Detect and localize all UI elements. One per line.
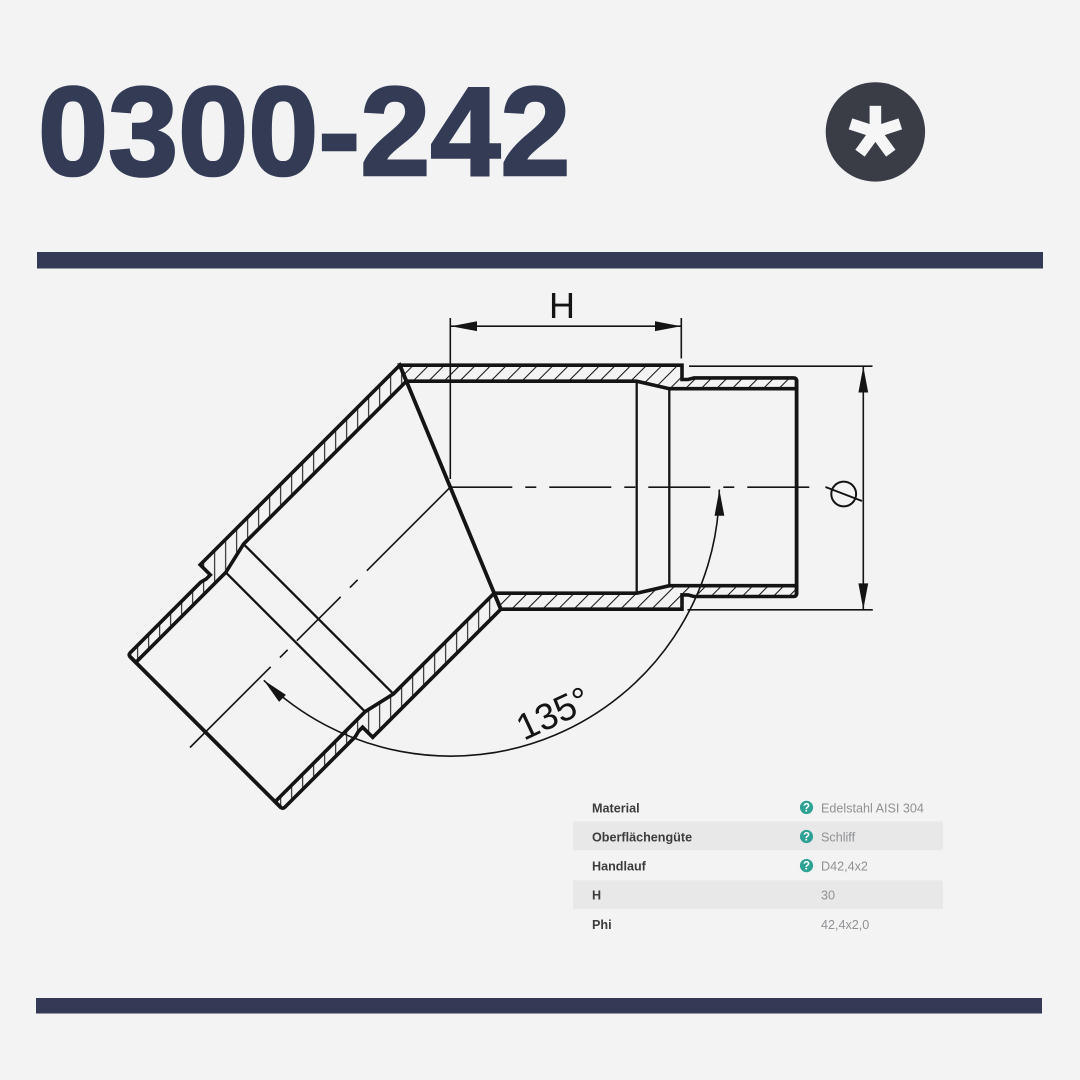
- svg-text:Schliff: Schliff: [821, 831, 856, 845]
- svg-text:30: 30: [821, 889, 835, 903]
- svg-text:Phi: Phi: [592, 918, 612, 932]
- svg-text:Edelstahl AISI 304: Edelstahl AISI 304: [821, 801, 924, 815]
- svg-text:?: ?: [803, 803, 810, 815]
- svg-text:0300-242: 0300-242: [38, 61, 571, 202]
- svg-text:42,4x2,0: 42,4x2,0: [821, 918, 869, 932]
- svg-text:?: ?: [803, 832, 810, 844]
- svg-text:?: ?: [803, 861, 810, 873]
- svg-text:H: H: [549, 285, 575, 326]
- svg-text:Material: Material: [592, 801, 640, 815]
- svg-text:Handlauf: Handlauf: [592, 860, 647, 874]
- svg-text:H: H: [592, 889, 601, 903]
- svg-text:D42,4x2: D42,4x2: [821, 860, 868, 874]
- svg-text:Oberflächengüte: Oberflächengüte: [592, 831, 692, 845]
